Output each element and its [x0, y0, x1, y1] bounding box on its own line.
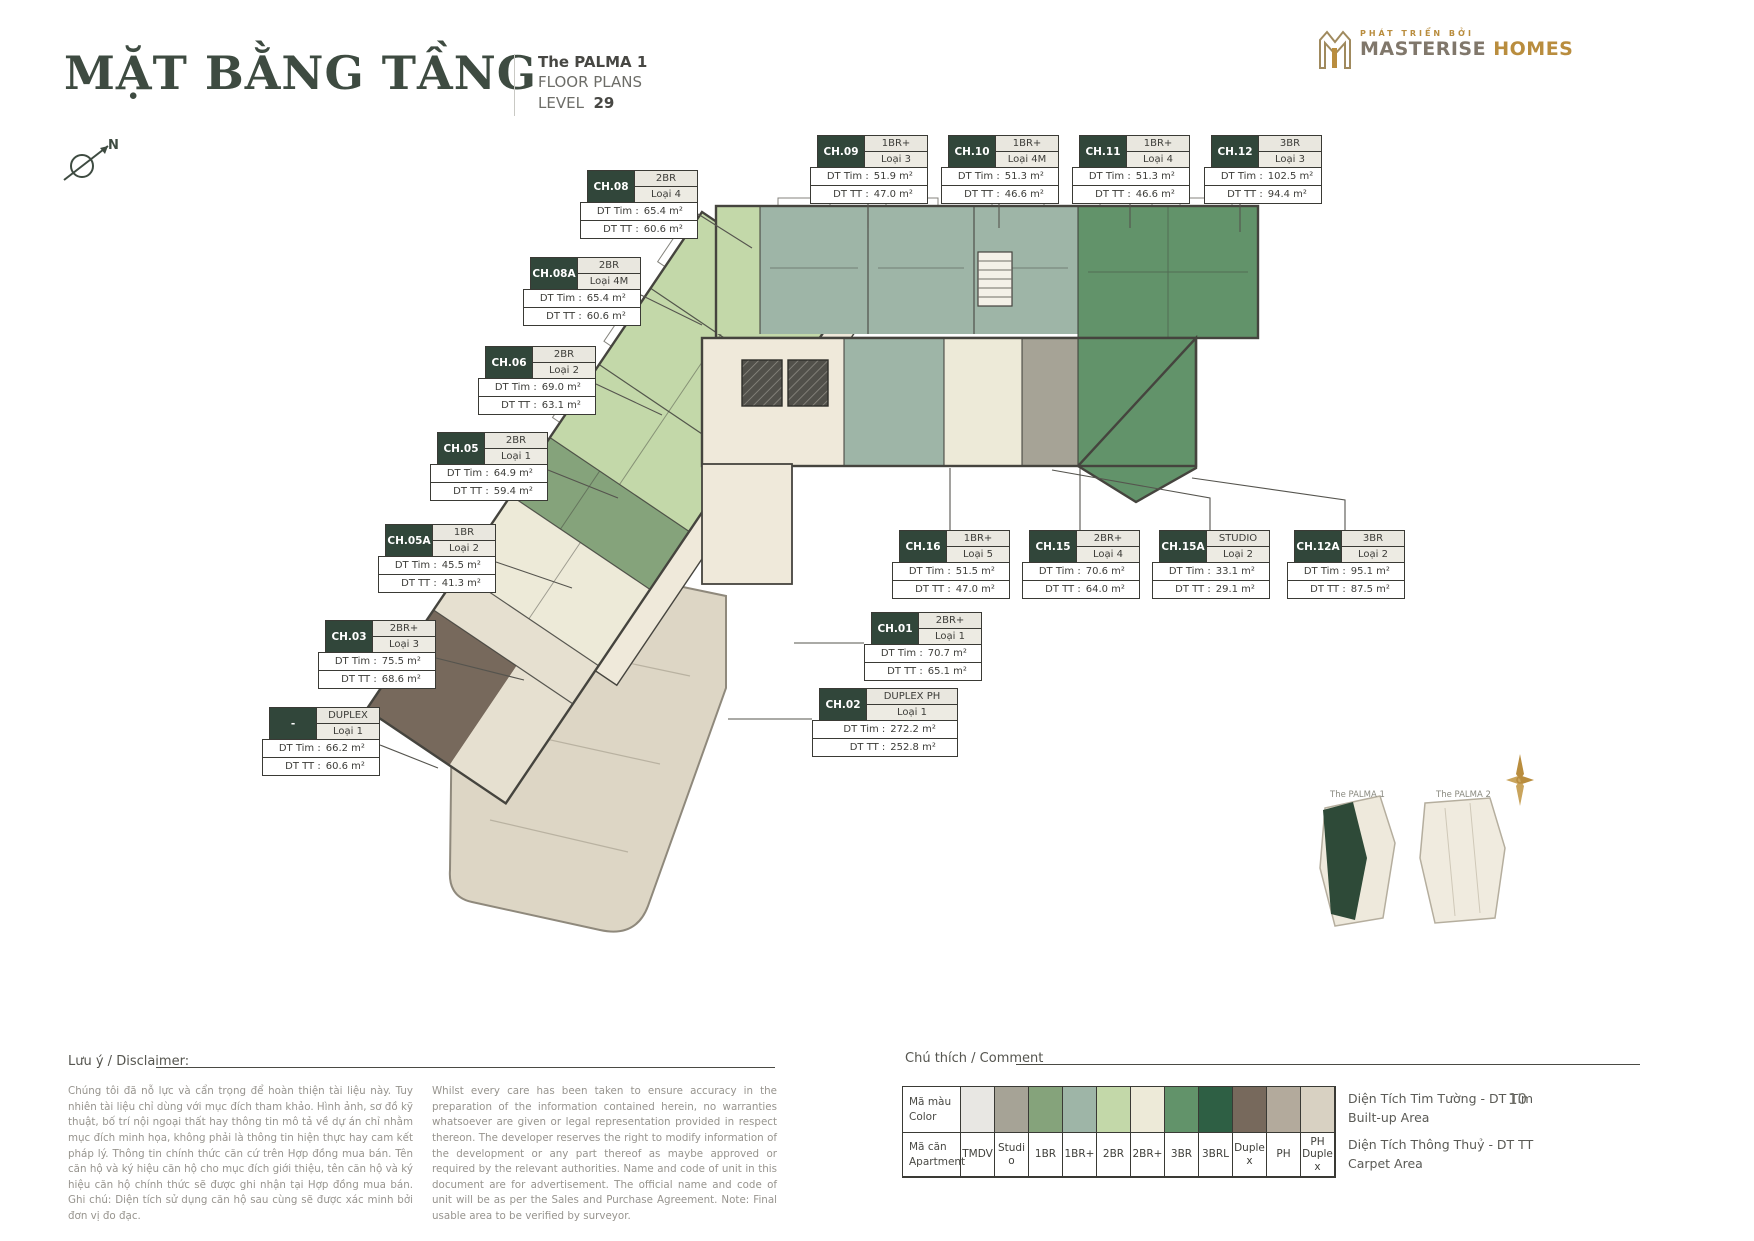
- carpet-label: DT TT :: [1023, 584, 1081, 595]
- legend-color-swatch: [995, 1087, 1029, 1133]
- unit-card: CH.03 2BR+ Loại 3 DT Tim : 75.5 m² DT TT…: [318, 620, 436, 689]
- carpet-label: DT TT :: [319, 674, 377, 685]
- disclaimer-vietnamese: Chúng tôi đã nỗ lực và cẩn trọng để hoàn…: [68, 1084, 413, 1225]
- builtup-value: 70.7 m²: [923, 648, 981, 659]
- legend-underline: [1016, 1064, 1640, 1065]
- builtup-value: 51.3 m²: [1000, 171, 1058, 182]
- unit-card: CH.12 3BR Loại 3 DT Tim : 102.5 m² DT TT…: [1204, 135, 1322, 204]
- builtup-label: DT Tim :: [431, 468, 489, 479]
- unit-type: 2BR: [484, 433, 547, 449]
- unit-type-column: 1BR+ Loại 5: [946, 531, 1009, 562]
- unit-card-header: CH.08A 2BR Loại 4M: [530, 257, 641, 290]
- unit-code: CH.02: [820, 689, 866, 720]
- unit-variant: Loại 1: [316, 724, 379, 739]
- carpet-label: DT TT :: [524, 311, 582, 322]
- unit-type-column: 2BR+ Loại 4: [1076, 531, 1139, 562]
- carpet-label: DT TT :: [581, 224, 639, 235]
- unit-code: CH.03: [326, 621, 372, 652]
- builtup-label: DT Tim :: [893, 566, 951, 577]
- unit-variant: Loại 4: [1126, 152, 1189, 167]
- disclaimer-english: Whilst every care has been taken to ensu…: [432, 1084, 777, 1225]
- unit-carpet-row: DT TT : 68.6 m²: [318, 670, 436, 689]
- unit-card: CH.08 2BR Loại 4 DT Tim : 65.4 m² DT TT …: [580, 170, 698, 239]
- carpet-value: 252.8 m²: [885, 742, 957, 753]
- builtup-label: DT Tim :: [942, 171, 1000, 182]
- unit-carpet-row: DT TT : 46.6 m²: [941, 185, 1059, 204]
- unit-type-column: STUDIO Loại 2: [1206, 531, 1269, 562]
- unit-carpet-row: DT TT : 60.6 m²: [580, 220, 698, 239]
- unit-carpet-row: DT TT : 94.4 m²: [1204, 185, 1322, 204]
- unit-variant: Loại 1: [918, 629, 981, 644]
- unit-code: CH.01: [872, 613, 918, 644]
- unit-carpet-row: DT TT : 29.1 m²: [1152, 580, 1270, 599]
- builtup-value: 66.2 m²: [321, 743, 379, 754]
- legend-apartment-type: PH: [1267, 1133, 1301, 1177]
- builtup-value: 51.9 m²: [869, 171, 927, 182]
- legend-apartment-type: PH Duplex: [1301, 1133, 1335, 1177]
- unit-carpet-row: DT TT : 87.5 m²: [1287, 580, 1405, 599]
- unit-type: 2BR+: [918, 613, 981, 629]
- builtup-value: 64.9 m²: [489, 468, 547, 479]
- unit-card: CH.15A STUDIO Loại 2 DT Tim : 33.1 m² DT…: [1152, 530, 1270, 599]
- unit-card-header: CH.05A 1BR Loại 2: [385, 524, 496, 557]
- builtup-label: DT Tim :: [581, 206, 639, 217]
- unit-type-column: 3BR Loại 2: [1341, 531, 1404, 562]
- carpet-value: 68.6 m²: [377, 674, 435, 685]
- site-map-palma2-label: The PALMA 2: [1436, 790, 1491, 800]
- unit-card: CH.15 2BR+ Loại 4 DT Tim : 70.6 m² DT TT…: [1022, 530, 1140, 599]
- unit-builtup-row: DT Tim : 102.5 m²: [1204, 167, 1322, 186]
- unit-code: CH.15A: [1160, 531, 1206, 562]
- unit-type-column: 2BR+ Loại 1: [918, 613, 981, 644]
- unit-type-column: DUPLEX Loại 1: [316, 708, 379, 739]
- builtup-value: 51.3 m²: [1131, 171, 1189, 182]
- unit-type: 2BR+: [1076, 531, 1139, 547]
- unit-type: 3BR: [1341, 531, 1404, 547]
- unit-variant: Loại 2: [1341, 547, 1404, 562]
- unit-type-column: 1BR+ Loại 4M: [995, 136, 1058, 167]
- unit-builtup-row: DT Tim : 70.6 m²: [1022, 562, 1140, 581]
- unit-builtup-row: DT Tim : 33.1 m²: [1152, 562, 1270, 581]
- unit-type-column: 1BR+ Loại 3: [864, 136, 927, 167]
- unit-type-column: 1BR Loại 2: [432, 525, 495, 556]
- unit-carpet-row: DT TT : 47.0 m²: [892, 580, 1010, 599]
- unit-variant: Loại 4M: [577, 274, 640, 289]
- unit-card-header: CH.15 2BR+ Loại 4: [1029, 530, 1140, 563]
- unit-type-column: 2BR Loại 1: [484, 433, 547, 464]
- unit-variant: Loại 4: [1076, 547, 1139, 562]
- unit-card-header: CH.01 2BR+ Loại 1: [871, 612, 982, 645]
- legend-color-swatch: [1233, 1087, 1267, 1133]
- legend-apartment-row-label: Mã cănApartment: [903, 1133, 961, 1177]
- unit-type: 2BR: [577, 258, 640, 274]
- legend-color-swatch: [1097, 1087, 1131, 1133]
- unit-code: CH.12: [1212, 136, 1258, 167]
- unit-code: CH.06: [486, 347, 532, 378]
- unit-card: CH.12A 3BR Loại 2 DT Tim : 95.1 m² DT TT…: [1287, 530, 1405, 599]
- page-number: 10: [1508, 1090, 1527, 1108]
- carpet-label: DT TT :: [1073, 189, 1131, 200]
- unit-builtup-row: DT Tim : 45.5 m²: [378, 556, 496, 575]
- unit-builtup-row: DT Tim : 51.3 m²: [1072, 167, 1190, 186]
- unit-variant: Loại 3: [372, 637, 435, 652]
- unit-code: CH.09: [818, 136, 864, 167]
- builtup-label: DT Tim :: [263, 743, 321, 754]
- legend-color-row-label: Mã màuColor: [903, 1087, 961, 1133]
- legend-color-swatch: [961, 1087, 995, 1133]
- unit-builtup-row: DT Tim : 51.9 m²: [810, 167, 928, 186]
- legend-color-swatch: [1063, 1087, 1097, 1133]
- unit-type: 2BR: [634, 171, 697, 187]
- unit-builtup-row: DT Tim : 70.7 m²: [864, 644, 982, 663]
- unit-card-header: CH.10 1BR+ Loại 4M: [948, 135, 1059, 168]
- unit-type-column: 2BR Loại 4: [634, 171, 697, 202]
- builtup-label: DT Tim :: [865, 648, 923, 659]
- unit-variant: Loại 1: [484, 449, 547, 464]
- unit-type-column: 3BR Loại 3: [1258, 136, 1321, 167]
- unit-code: CH.11: [1080, 136, 1126, 167]
- builtup-value: 102.5 m²: [1263, 171, 1321, 182]
- unit-carpet-row: DT TT : 59.4 m²: [430, 482, 548, 501]
- unit-type-column: DUPLEX PH Loại 1: [866, 689, 957, 720]
- unit-variant: Loại 3: [864, 152, 927, 167]
- unit-carpet-row: DT TT : 60.6 m²: [523, 307, 641, 326]
- builtup-label: DT Tim :: [319, 656, 377, 667]
- unit-type: 1BR+: [995, 136, 1058, 152]
- unit-carpet-row: DT TT : 65.1 m²: [864, 662, 982, 681]
- unit-card-header: CH.11 1BR+ Loại 4: [1079, 135, 1190, 168]
- legend-apartment-type: Duplex: [1233, 1133, 1267, 1177]
- carpet-value: 65.1 m²: [923, 666, 981, 677]
- builtup-value: 272.2 m²: [885, 724, 957, 735]
- unit-type: 2BR+: [372, 621, 435, 637]
- builtup-label: DT Tim :: [811, 171, 869, 182]
- unit-card-header: CH.02 DUPLEX PH Loại 1: [819, 688, 958, 721]
- legend-note-builtup: Diện Tích Tim Tường - DT Tim Built-up Ar…: [1348, 1090, 1533, 1128]
- unit-cards-layer: CH.08 2BR Loại 4 DT Tim : 65.4 m² DT TT …: [0, 0, 1754, 1241]
- unit-type: 2BR: [532, 347, 595, 363]
- carpet-label: DT TT :: [1205, 189, 1263, 200]
- brochure-page: MẶT BẰNG TẦNG The PALMA 1 FLOOR PLANS LE…: [0, 0, 1754, 1241]
- builtup-value: 45.5 m²: [437, 560, 495, 571]
- unit-card-header: CH.15A STUDIO Loại 2: [1159, 530, 1270, 563]
- carpet-value: 46.6 m²: [1131, 189, 1189, 200]
- carpet-label: DT TT :: [865, 666, 923, 677]
- unit-carpet-row: DT TT : 41.3 m²: [378, 574, 496, 593]
- carpet-label: DT TT :: [1153, 584, 1211, 595]
- unit-card: CH.09 1BR+ Loại 3 DT Tim : 51.9 m² DT TT…: [810, 135, 928, 204]
- unit-card: CH.10 1BR+ Loại 4M DT Tim : 51.3 m² DT T…: [941, 135, 1059, 204]
- unit-carpet-row: DT TT : 63.1 m²: [478, 396, 596, 415]
- unit-card: CH.05A 1BR Loại 2 DT Tim : 45.5 m² DT TT…: [378, 524, 496, 593]
- carpet-label: DT TT :: [431, 486, 489, 497]
- unit-variant: Loại 1: [866, 705, 957, 720]
- carpet-value: 46.6 m²: [1000, 189, 1058, 200]
- builtup-label: DT Tim :: [379, 560, 437, 571]
- carpet-label: DT TT :: [813, 742, 885, 753]
- unit-builtup-row: DT Tim : 64.9 m²: [430, 464, 548, 483]
- unit-type: 3BR: [1258, 136, 1321, 152]
- unit-carpet-row: DT TT : 47.0 m²: [810, 185, 928, 204]
- legend-apartment-type: TMDV: [961, 1133, 995, 1177]
- unit-variant: Loại 2: [1206, 547, 1269, 562]
- builtup-label: DT Tim :: [1205, 171, 1263, 182]
- carpet-label: DT TT :: [893, 584, 951, 595]
- builtup-value: 33.1 m²: [1211, 566, 1269, 577]
- unit-card: CH.02 DUPLEX PH Loại 1 DT Tim : 272.2 m²…: [812, 688, 958, 757]
- unit-card: CH.16 1BR+ Loại 5 DT Tim : 51.5 m² DT TT…: [892, 530, 1010, 599]
- builtup-label: DT Tim :: [524, 293, 582, 304]
- unit-type: DUPLEX: [316, 708, 379, 724]
- unit-variant: Loại 5: [946, 547, 1009, 562]
- legend-color-swatch: [1131, 1087, 1165, 1133]
- unit-carpet-row: DT TT : 64.0 m²: [1022, 580, 1140, 599]
- carpet-value: 47.0 m²: [869, 189, 927, 200]
- unit-builtup-row: DT Tim : 51.3 m²: [941, 167, 1059, 186]
- unit-type: DUPLEX PH: [866, 689, 957, 705]
- unit-type-column: 1BR+ Loại 4: [1126, 136, 1189, 167]
- builtup-label: DT Tim :: [1288, 566, 1346, 577]
- unit-code: -: [270, 708, 316, 739]
- unit-variant: Loại 4: [634, 187, 697, 202]
- unit-card-header: - DUPLEX Loại 1: [269, 707, 380, 740]
- unit-carpet-row: DT TT : 252.8 m²: [812, 738, 958, 757]
- compass-rose-icon: [1502, 752, 1538, 808]
- builtup-value: 69.0 m²: [537, 382, 595, 393]
- unit-card-header: CH.12 3BR Loại 3: [1211, 135, 1322, 168]
- legend-apartment-type: 3BRL: [1199, 1133, 1233, 1177]
- unit-card-header: CH.06 2BR Loại 2: [485, 346, 596, 379]
- builtup-label: DT Tim :: [813, 724, 885, 735]
- unit-variant: Loại 2: [532, 363, 595, 378]
- carpet-value: 60.6 m²: [321, 761, 379, 772]
- unit-builtup-row: DT Tim : 65.4 m²: [523, 289, 641, 308]
- legend-apartment-type: 3BR: [1165, 1133, 1199, 1177]
- unit-code: CH.08A: [531, 258, 577, 289]
- carpet-value: 60.6 m²: [582, 311, 640, 322]
- disclaimer-underline: [156, 1067, 775, 1068]
- carpet-label: DT TT :: [942, 189, 1000, 200]
- unit-type-column: 2BR+ Loại 3: [372, 621, 435, 652]
- unit-builtup-row: DT Tim : 51.5 m²: [892, 562, 1010, 581]
- builtup-label: DT Tim :: [1073, 171, 1131, 182]
- builtup-value: 51.5 m²: [951, 566, 1009, 577]
- carpet-label: DT TT :: [379, 578, 437, 589]
- unit-code: CH.16: [900, 531, 946, 562]
- unit-card: - DUPLEX Loại 1 DT Tim : 66.2 m² DT TT :…: [262, 707, 380, 776]
- carpet-label: DT TT :: [1288, 584, 1346, 595]
- legend-apartment-type: 1BR: [1029, 1133, 1063, 1177]
- legend-color-swatch: [1267, 1087, 1301, 1133]
- unit-card-header: CH.03 2BR+ Loại 3: [325, 620, 436, 653]
- site-map-palma1-label: The PALMA 1: [1330, 790, 1385, 800]
- unit-variant: Loại 4M: [995, 152, 1058, 167]
- unit-code: CH.10: [949, 136, 995, 167]
- builtup-value: 95.1 m²: [1346, 566, 1404, 577]
- unit-type: STUDIO: [1206, 531, 1269, 547]
- carpet-value: 63.1 m²: [537, 400, 595, 411]
- builtup-value: 75.5 m²: [377, 656, 435, 667]
- unit-builtup-row: DT Tim : 65.4 m²: [580, 202, 698, 221]
- carpet-label: DT TT :: [811, 189, 869, 200]
- builtup-label: DT Tim :: [1153, 566, 1211, 577]
- unit-type: 1BR: [432, 525, 495, 541]
- legend-apartment-type: 2BR+: [1131, 1133, 1165, 1177]
- carpet-value: 64.0 m²: [1081, 584, 1139, 595]
- unit-code: CH.05: [438, 433, 484, 464]
- unit-card-header: CH.12A 3BR Loại 2: [1294, 530, 1405, 563]
- unit-type-column: 2BR Loại 4M: [577, 258, 640, 289]
- carpet-label: DT TT :: [263, 761, 321, 772]
- carpet-value: 41.3 m²: [437, 578, 495, 589]
- unit-card: CH.06 2BR Loại 2 DT Tim : 69.0 m² DT TT …: [478, 346, 596, 415]
- unit-builtup-row: DT Tim : 75.5 m²: [318, 652, 436, 671]
- unit-carpet-row: DT TT : 60.6 m²: [262, 757, 380, 776]
- legend-apartment-type: Studio: [995, 1133, 1029, 1177]
- carpet-value: 87.5 m²: [1346, 584, 1404, 595]
- unit-builtup-row: DT Tim : 66.2 m²: [262, 739, 380, 758]
- unit-type-column: 2BR Loại 2: [532, 347, 595, 378]
- unit-code: CH.15: [1030, 531, 1076, 562]
- builtup-value: 70.6 m²: [1081, 566, 1139, 577]
- unit-code: CH.05A: [386, 525, 432, 556]
- carpet-value: 59.4 m²: [489, 486, 547, 497]
- unit-card-header: CH.08 2BR Loại 4: [587, 170, 698, 203]
- legend-apartment-type: 2BR: [1097, 1133, 1131, 1177]
- builtup-value: 65.4 m²: [639, 206, 697, 217]
- carpet-label: DT TT :: [479, 400, 537, 411]
- site-map: [1295, 748, 1535, 948]
- carpet-value: 29.1 m²: [1211, 584, 1269, 595]
- legend-color-swatch: [1029, 1087, 1063, 1133]
- unit-type: 1BR+: [946, 531, 1009, 547]
- unit-type: 1BR+: [864, 136, 927, 152]
- unit-builtup-row: DT Tim : 272.2 m²: [812, 720, 958, 739]
- unit-card-header: CH.09 1BR+ Loại 3: [817, 135, 928, 168]
- unit-card-header: CH.05 2BR Loại 1: [437, 432, 548, 465]
- unit-card: CH.01 2BR+ Loại 1 DT Tim : 70.7 m² DT TT…: [864, 612, 982, 681]
- unit-card: CH.08A 2BR Loại 4M DT Tim : 65.4 m² DT T…: [523, 257, 641, 326]
- unit-card: CH.11 1BR+ Loại 4 DT Tim : 51.3 m² DT TT…: [1072, 135, 1190, 204]
- legend-color-swatch: [1301, 1087, 1335, 1133]
- legend-table: Mã màuColor Mã cănApartment TMDVStudio1B…: [902, 1086, 1336, 1178]
- unit-variant: Loại 3: [1258, 152, 1321, 167]
- carpet-value: 94.4 m²: [1263, 189, 1321, 200]
- unit-carpet-row: DT TT : 46.6 m²: [1072, 185, 1190, 204]
- unit-code: CH.08: [588, 171, 634, 202]
- unit-builtup-row: DT Tim : 69.0 m²: [478, 378, 596, 397]
- carpet-value: 47.0 m²: [951, 584, 1009, 595]
- unit-builtup-row: DT Tim : 95.1 m²: [1287, 562, 1405, 581]
- legend-apartment-type: 1BR+: [1063, 1133, 1097, 1177]
- legend-color-swatch: [1199, 1087, 1233, 1133]
- unit-card-header: CH.16 1BR+ Loại 5: [899, 530, 1010, 563]
- unit-type: 1BR+: [1126, 136, 1189, 152]
- legend-note-carpet: Diện Tích Thông Thuỷ - DT TT Carpet Area: [1348, 1136, 1533, 1174]
- legend-color-swatch: [1165, 1087, 1199, 1133]
- builtup-label: DT Tim :: [1023, 566, 1081, 577]
- builtup-value: 65.4 m²: [582, 293, 640, 304]
- unit-code: CH.12A: [1295, 531, 1341, 562]
- carpet-value: 60.6 m²: [639, 224, 697, 235]
- unit-card: CH.05 2BR Loại 1 DT Tim : 64.9 m² DT TT …: [430, 432, 548, 501]
- unit-variant: Loại 2: [432, 541, 495, 556]
- builtup-label: DT Tim :: [479, 382, 537, 393]
